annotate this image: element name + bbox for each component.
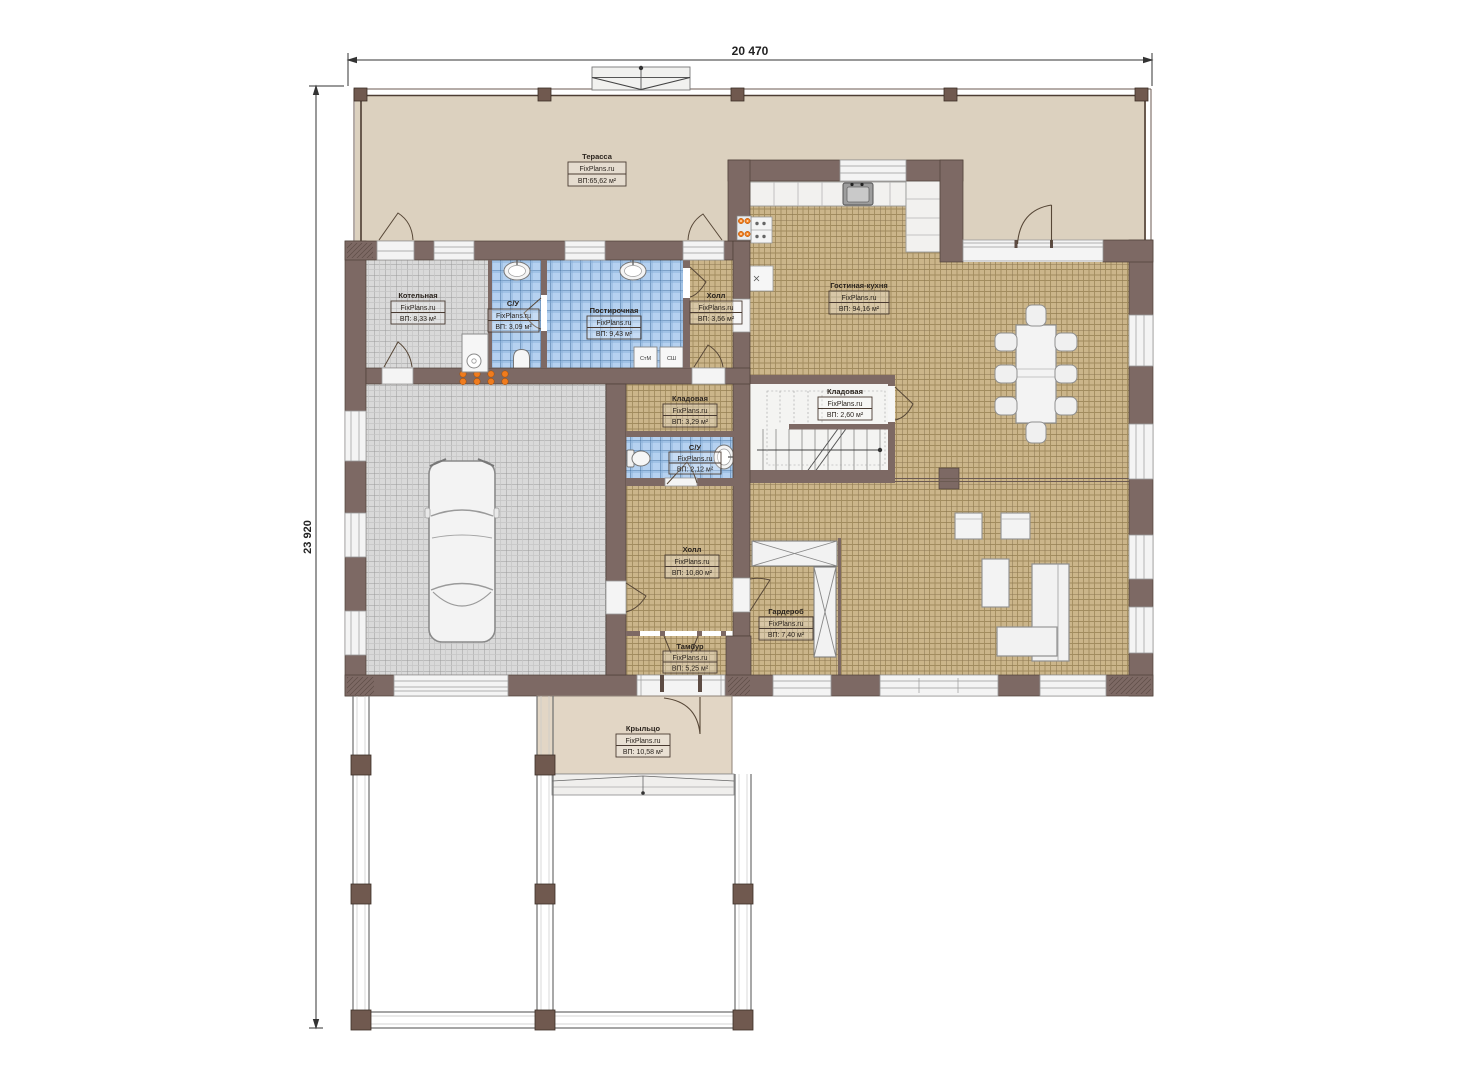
svg-text:Постирочная: Постирочная: [590, 306, 639, 315]
svg-text:FixPlans.ru: FixPlans.ru: [677, 456, 712, 463]
svg-text:FixPlans.ru: FixPlans.ru: [596, 320, 631, 327]
svg-text:ВП: 10,80 м²: ВП: 10,80 м²: [672, 570, 713, 577]
svg-text:FixPlans.ru: FixPlans.ru: [625, 738, 660, 745]
svg-text:ВП: 2,60 м²: ВП: 2,60 м²: [827, 412, 864, 419]
svg-text:ВП: 3,29 м²: ВП: 3,29 м²: [672, 419, 709, 426]
svg-text:СШ: СШ: [667, 356, 676, 362]
svg-text:FixPlans.ru: FixPlans.ru: [698, 305, 733, 312]
svg-text:С/У: С/У: [507, 299, 520, 308]
svg-text:Гостиная-кухня: Гостиная-кухня: [830, 281, 887, 290]
svg-text:23 920: 23 920: [302, 520, 314, 554]
svg-text:СтМ: СтМ: [640, 356, 651, 362]
svg-text:FixPlans.ru: FixPlans.ru: [674, 559, 709, 566]
svg-text:FixPlans.ru: FixPlans.ru: [768, 621, 803, 628]
svg-text:ВП: 5,25 м²: ВП: 5,25 м²: [672, 666, 709, 673]
svg-text:ВП: 3,56 м²: ВП: 3,56 м²: [698, 316, 735, 323]
svg-text:FixPlans.ru: FixPlans.ru: [579, 166, 614, 173]
svg-text:ВП:65,62 м²: ВП:65,62 м²: [578, 178, 617, 185]
svg-text:Кладовая: Кладовая: [827, 387, 863, 396]
svg-text:FixPlans.ru: FixPlans.ru: [672, 655, 707, 662]
svg-text:20 470: 20 470: [732, 44, 769, 58]
svg-text:ВП: 10,58 м²: ВП: 10,58 м²: [623, 749, 664, 756]
svg-text:Гардероб: Гардероб: [768, 607, 804, 616]
svg-text:FixPlans.ru: FixPlans.ru: [841, 295, 876, 302]
svg-text:FixPlans.ru: FixPlans.ru: [827, 401, 862, 408]
svg-text:Терасса: Терасса: [582, 152, 613, 161]
svg-text:Тамбур: Тамбур: [676, 642, 704, 651]
svg-text:ВП: 94,16 м²: ВП: 94,16 м²: [839, 306, 880, 313]
svg-text:FixPlans.ru: FixPlans.ru: [672, 408, 707, 415]
svg-text:ВП: 9,43 м²: ВП: 9,43 м²: [596, 331, 633, 338]
svg-text:ВП: 7,40 м²: ВП: 7,40 м²: [768, 632, 805, 639]
svg-text:FixPlans.ru: FixPlans.ru: [496, 313, 531, 320]
svg-text:Котельная: Котельная: [398, 291, 437, 300]
svg-text:Крыльцо: Крыльцо: [626, 724, 661, 733]
svg-text:С/У: С/У: [689, 443, 702, 452]
svg-text:Холл: Холл: [683, 545, 702, 554]
svg-text:Холл: Холл: [707, 291, 726, 300]
svg-text:Кладовая: Кладовая: [672, 394, 708, 403]
svg-text:ВП: 2,12 м²: ВП: 2,12 м²: [677, 467, 714, 474]
svg-text:ВП: 8,33 м²: ВП: 8,33 м²: [400, 316, 437, 323]
svg-text:ВП: 3,09 м²: ВП: 3,09 м²: [495, 324, 532, 331]
svg-text:FixPlans.ru: FixPlans.ru: [400, 305, 435, 312]
